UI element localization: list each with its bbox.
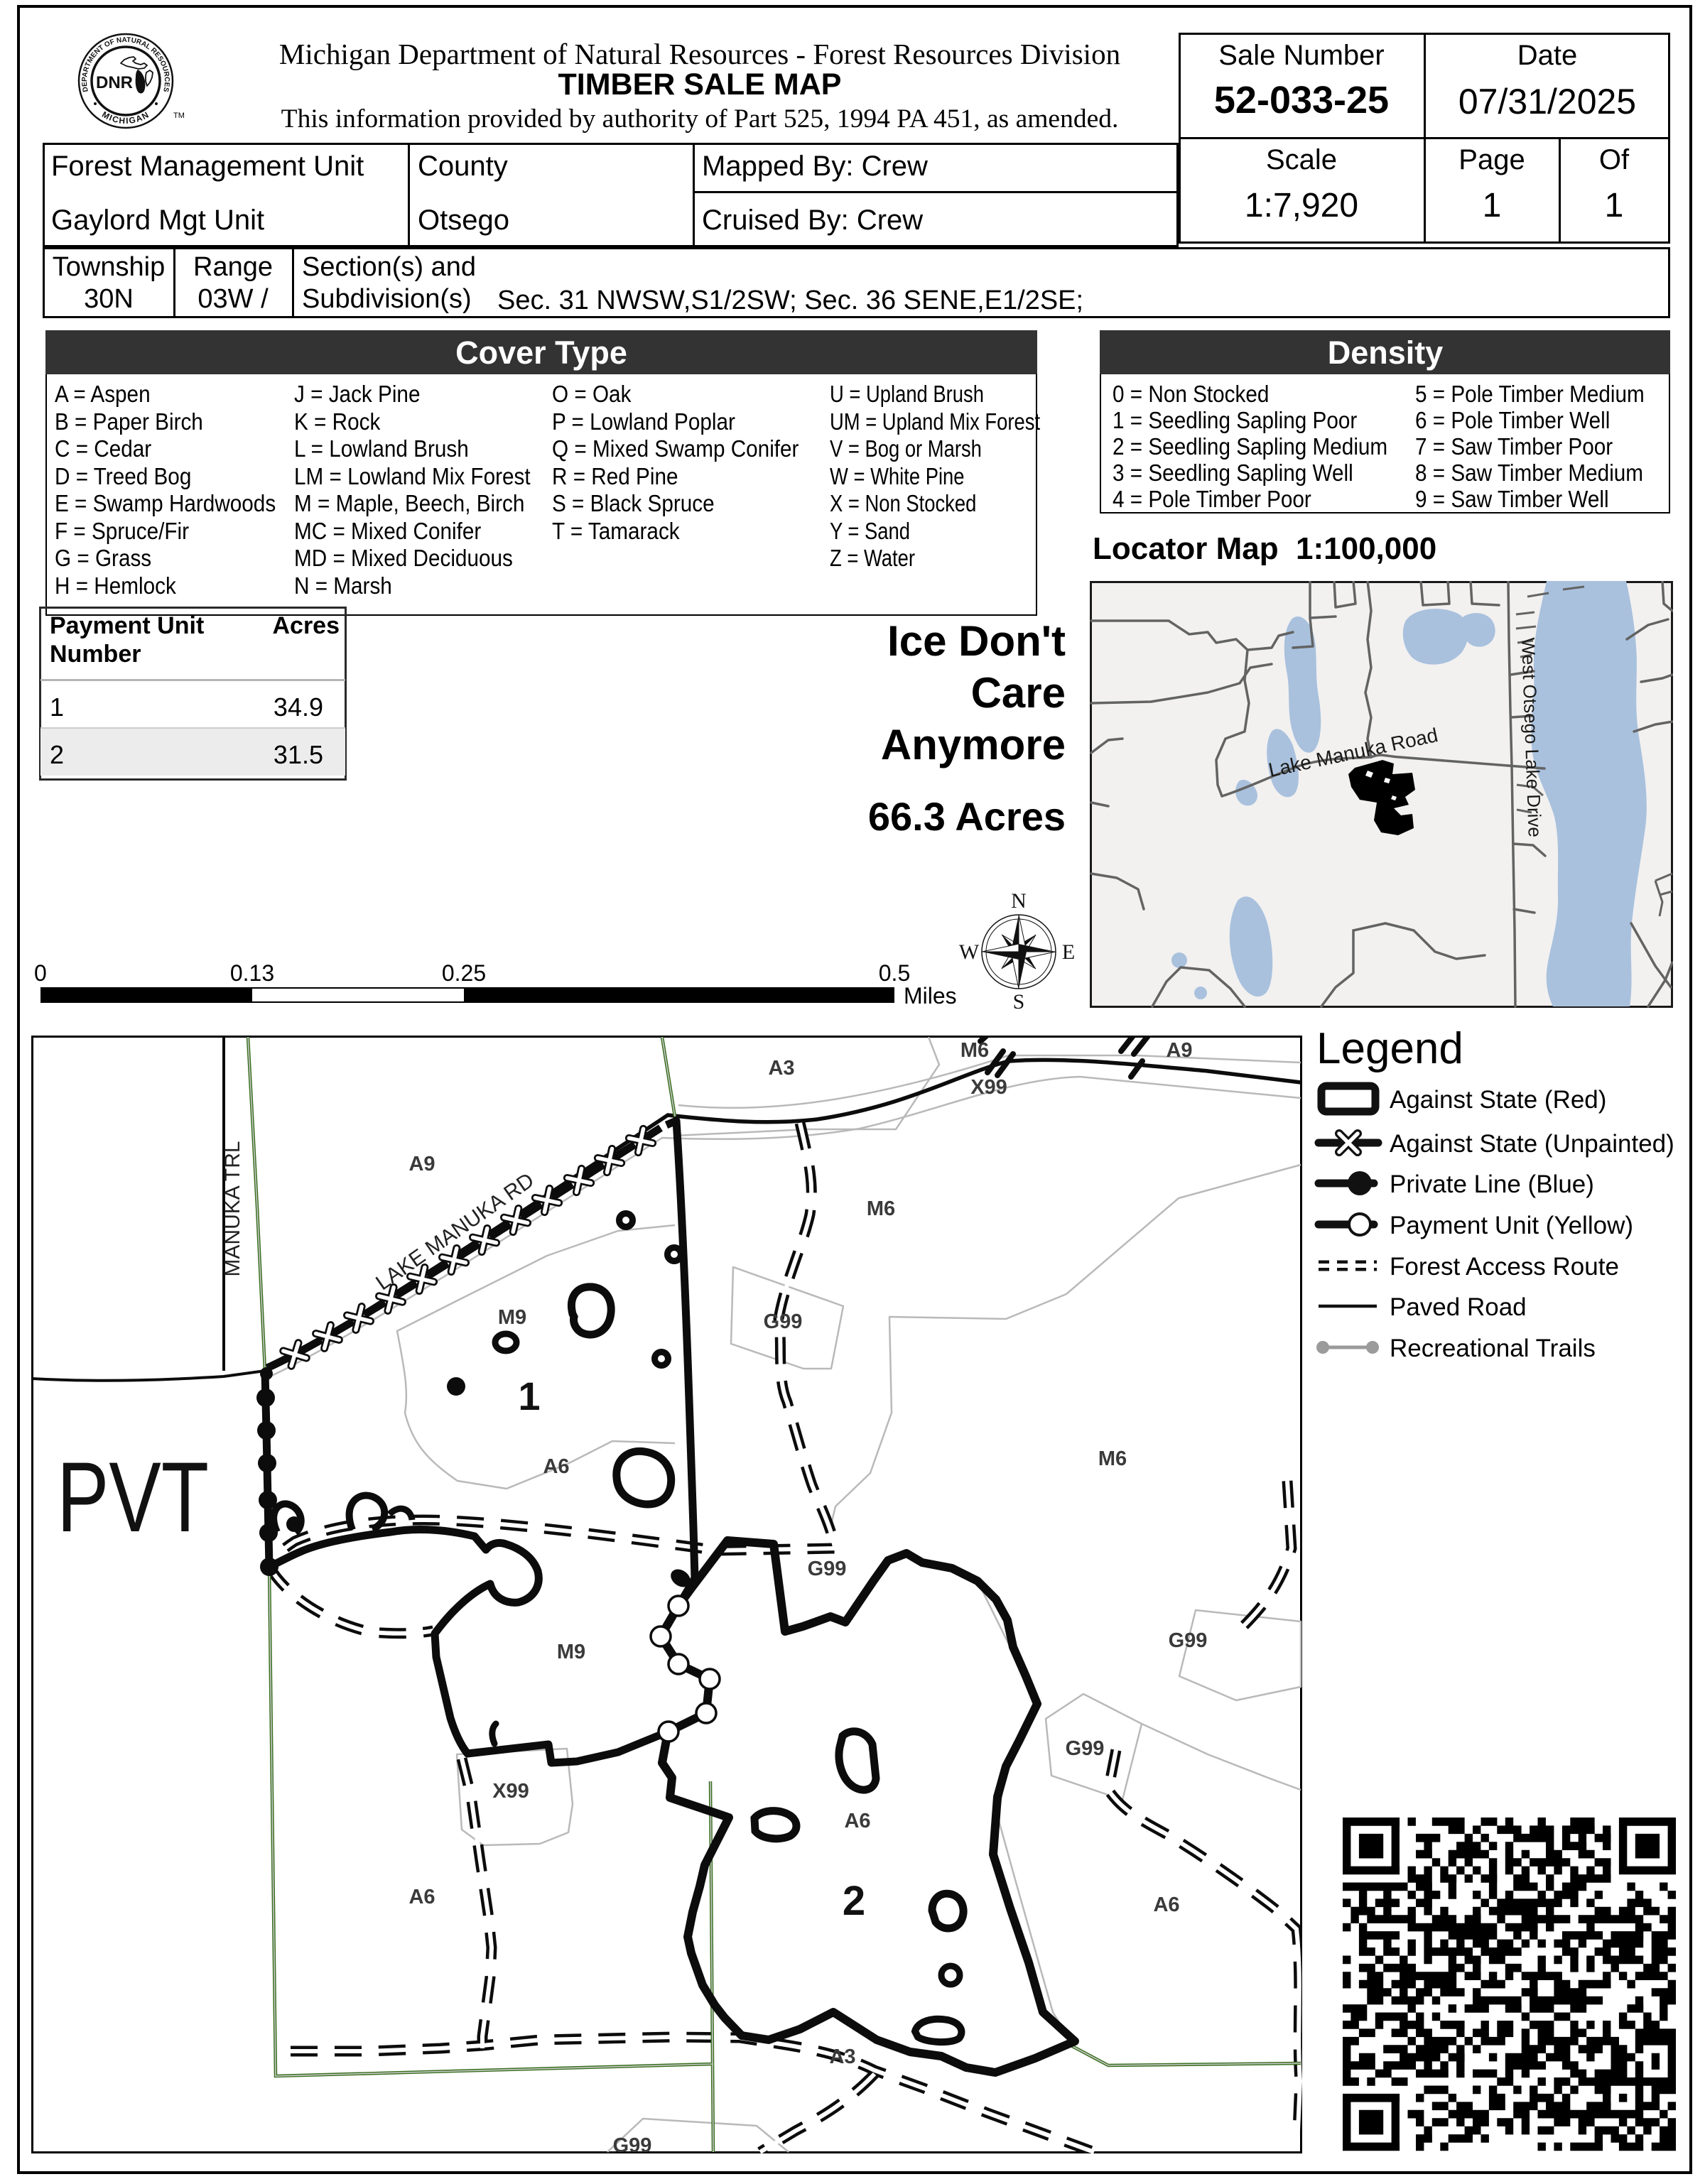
svg-text:A6: A6 [1153, 1894, 1179, 1916]
svg-text:1: 1 [518, 1374, 540, 1418]
svg-text:MANUKA TRL: MANUKA TRL [221, 1141, 244, 1276]
svg-text:G99: G99 [613, 2134, 652, 2153]
svg-text:N: N [1011, 889, 1027, 913]
svg-text:A9: A9 [408, 1153, 435, 1175]
svg-text:A3: A3 [768, 1057, 794, 1080]
svg-text:A9: A9 [1166, 1039, 1192, 1062]
svg-text:DNR: DNR [96, 73, 133, 92]
svg-text:A6: A6 [844, 1810, 870, 1832]
svg-text:M9: M9 [557, 1641, 585, 1663]
svg-text:A3: A3 [829, 2046, 855, 2068]
svg-text:G99: G99 [764, 1310, 803, 1333]
svg-text:M6: M6 [1098, 1447, 1127, 1470]
svg-text:M9: M9 [498, 1306, 526, 1329]
svg-text:W: W [959, 940, 980, 964]
svg-text:PVT: PVT [57, 1441, 209, 1553]
svg-text:G99: G99 [1169, 1629, 1208, 1652]
svg-text:S: S [1013, 990, 1025, 1014]
svg-text:A6: A6 [408, 1886, 435, 1908]
svg-text:X99: X99 [970, 1076, 1007, 1099]
svg-text:G99: G99 [808, 1558, 847, 1580]
svg-text:A6: A6 [543, 1455, 569, 1478]
svg-text:E: E [1062, 940, 1075, 964]
svg-text:M6: M6 [867, 1197, 895, 1220]
svg-text:2: 2 [843, 1878, 865, 1924]
svg-text:M6: M6 [960, 1039, 989, 1062]
svg-text:X99: X99 [492, 1780, 529, 1803]
svg-text:G99: G99 [1066, 1737, 1105, 1760]
